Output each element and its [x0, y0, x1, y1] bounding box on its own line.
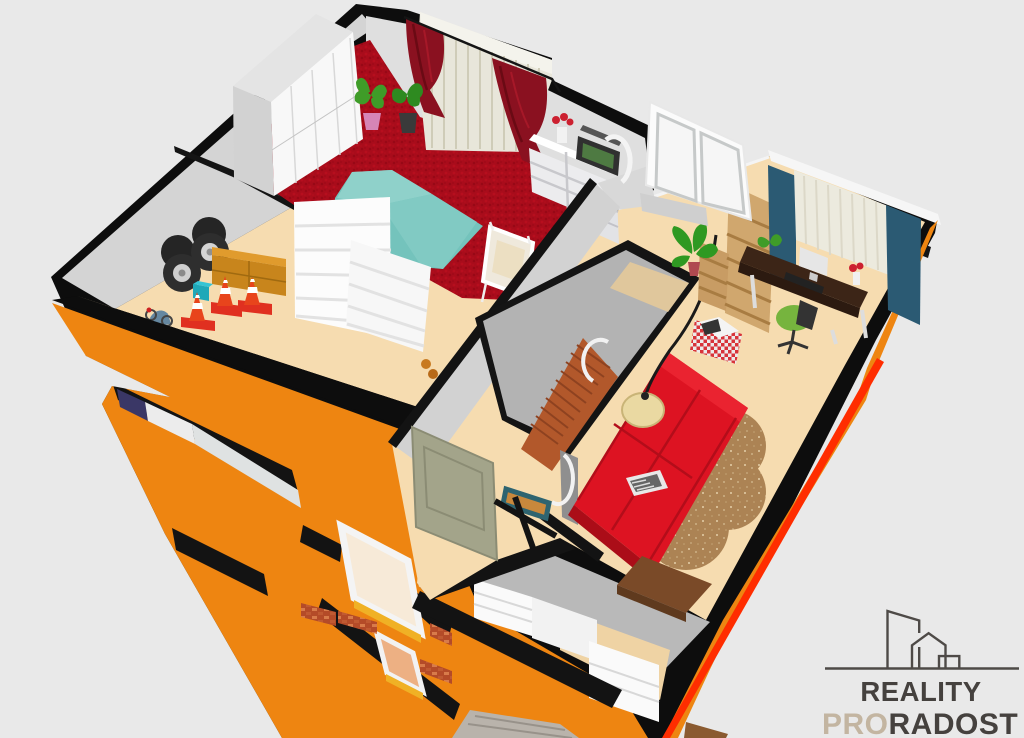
svg-text:PRORADOST: PRORADOST [822, 708, 1018, 738]
svg-text:REALITY: REALITY [860, 676, 981, 707]
